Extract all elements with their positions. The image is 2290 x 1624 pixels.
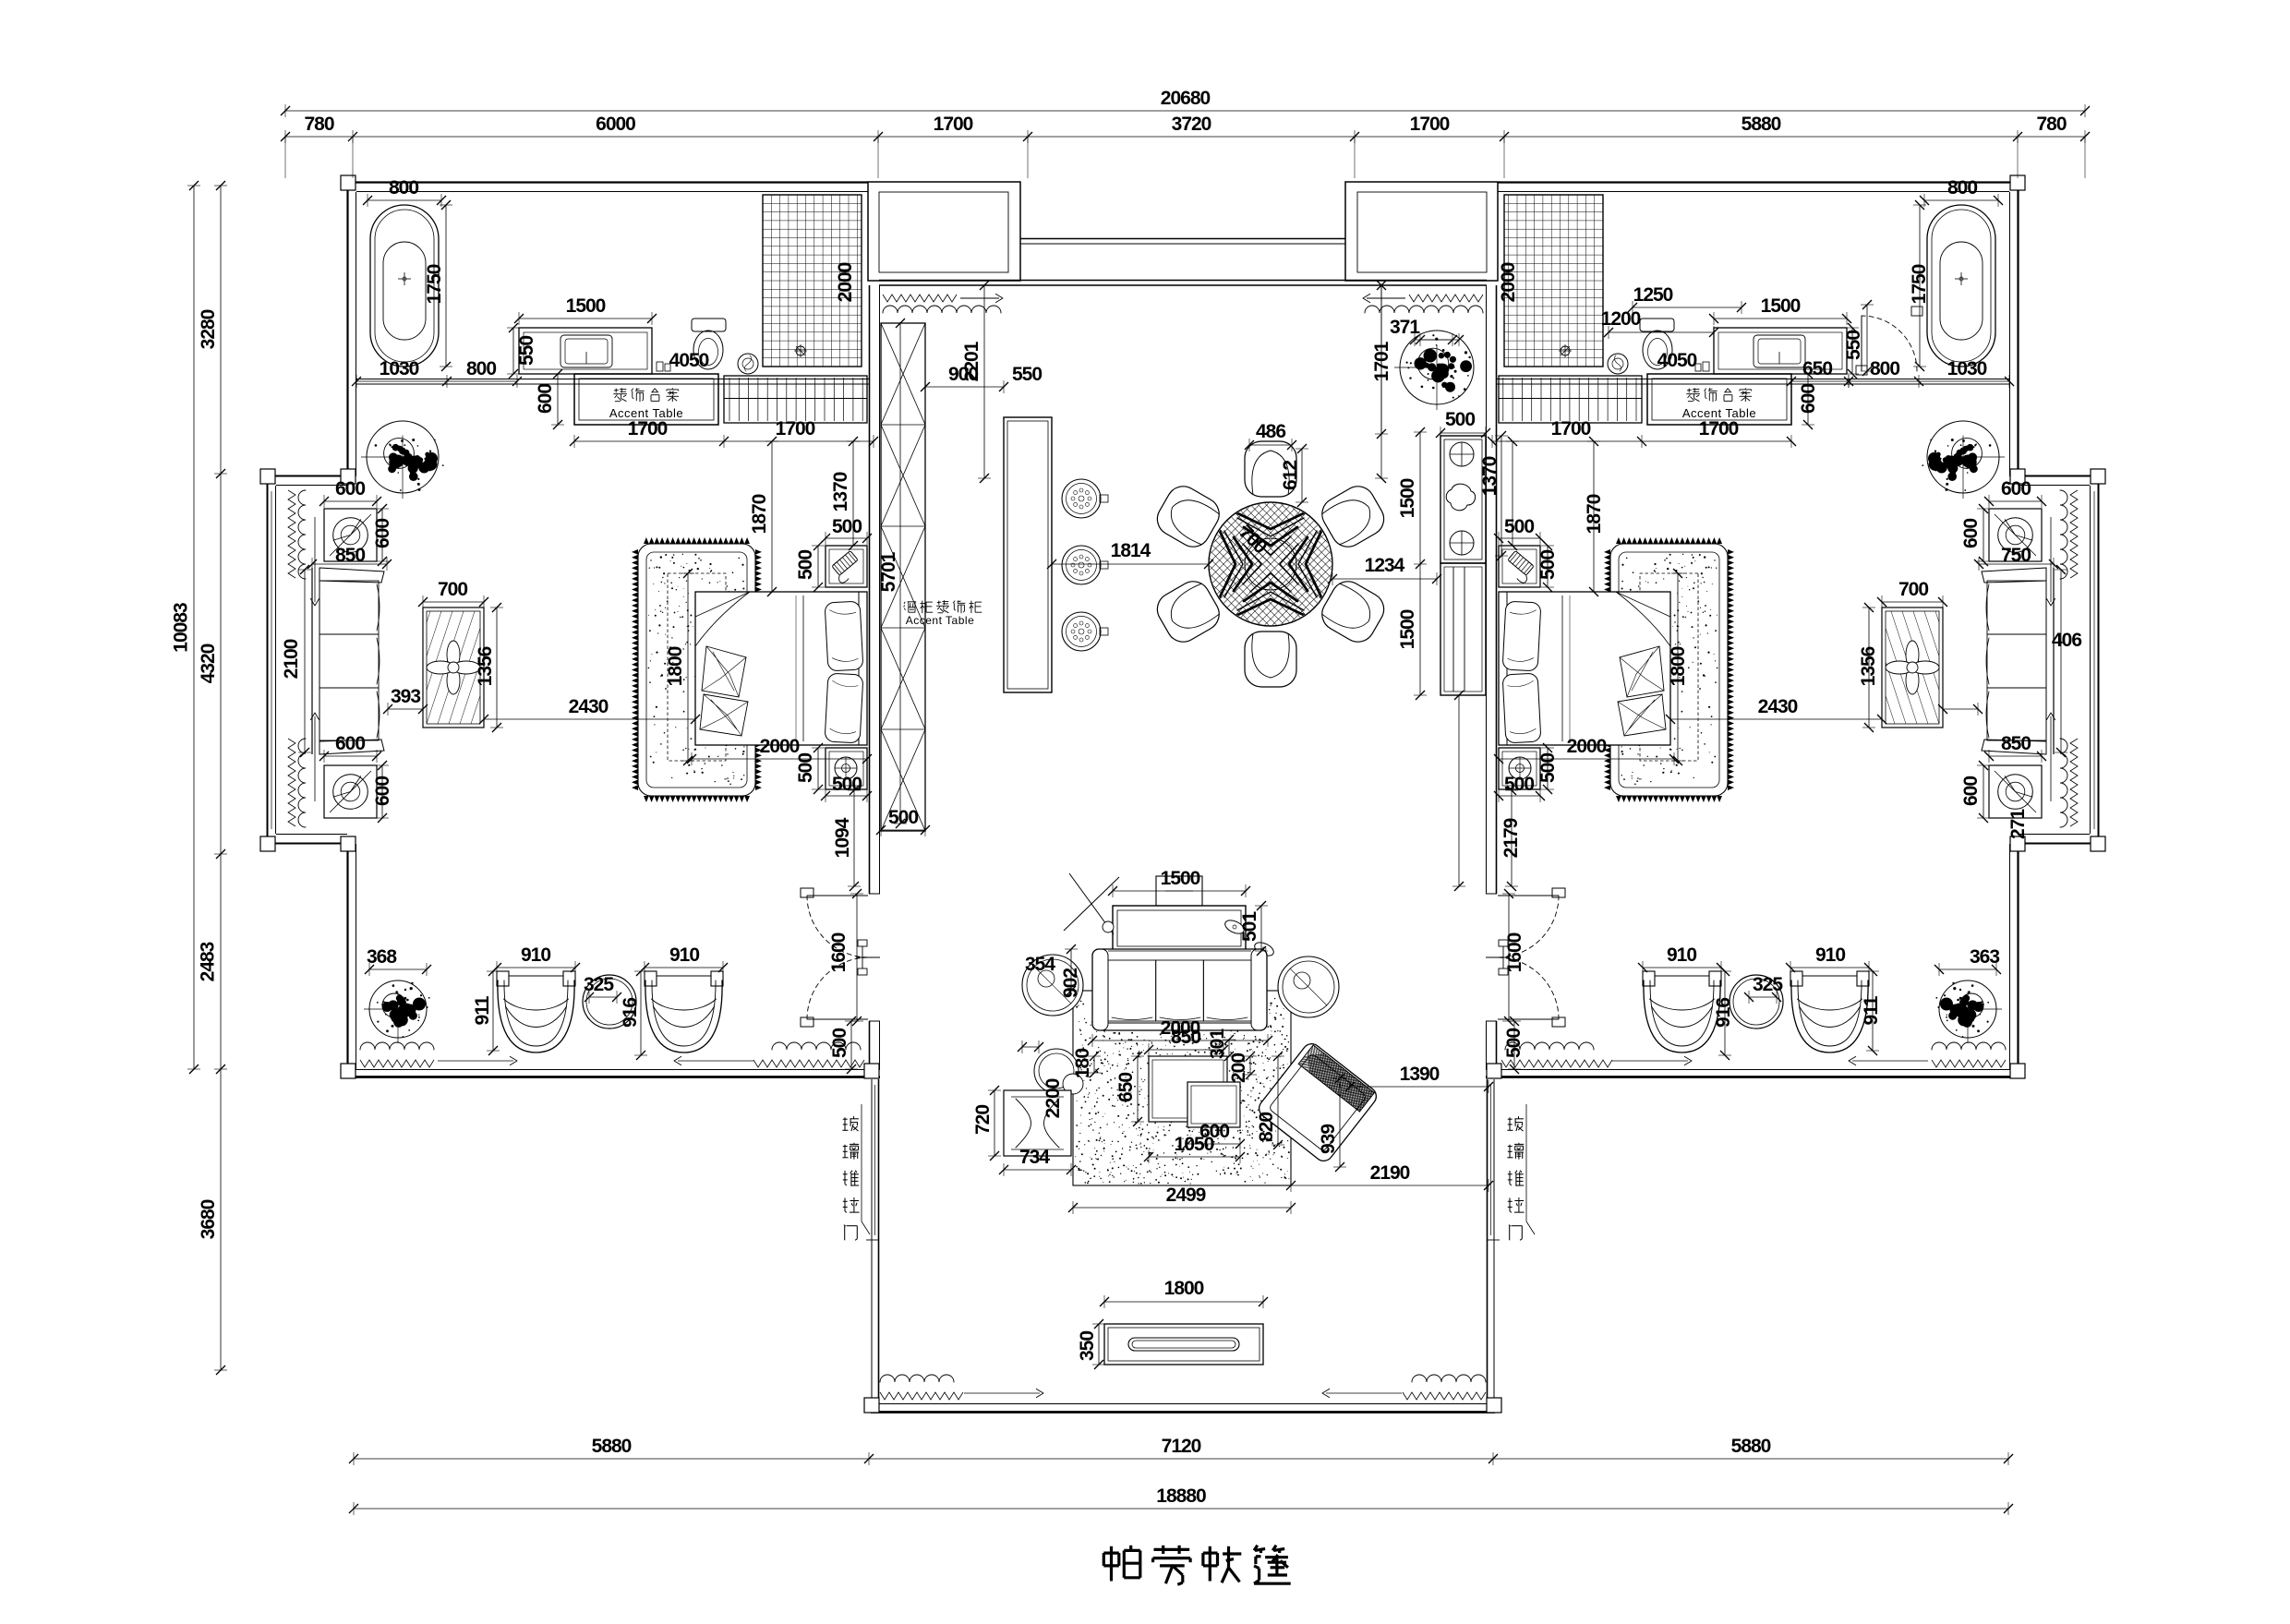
svg-text:600: 600 — [372, 776, 393, 806]
svg-text:Accent Table: Accent Table — [1682, 406, 1756, 420]
svg-text:1600: 1600 — [828, 932, 850, 972]
svg-text:5880: 5880 — [1742, 114, 1781, 135]
svg-text:1800: 1800 — [1164, 1278, 1204, 1299]
svg-text:500: 500 — [795, 550, 816, 580]
svg-text:500: 500 — [888, 807, 918, 828]
svg-text:720: 720 — [972, 1105, 994, 1135]
svg-text:354: 354 — [1025, 954, 1055, 975]
svg-text:1030: 1030 — [1947, 358, 1987, 379]
svg-text:850: 850 — [1171, 1027, 1200, 1048]
svg-text:500: 500 — [832, 516, 862, 537]
svg-text:180: 180 — [1072, 1049, 1093, 1078]
svg-text:368: 368 — [367, 946, 397, 968]
svg-text:1600: 1600 — [1504, 932, 1525, 972]
svg-text:1200: 1200 — [1601, 308, 1641, 330]
svg-text:1500: 1500 — [566, 295, 606, 317]
svg-text:500: 500 — [829, 1029, 850, 1058]
svg-text:1370: 1370 — [1479, 456, 1501, 496]
svg-text:780: 780 — [304, 114, 333, 135]
svg-text:2430: 2430 — [569, 696, 609, 717]
svg-text:820: 820 — [1256, 1113, 1277, 1142]
svg-text:916: 916 — [620, 998, 641, 1028]
svg-text:600: 600 — [1960, 776, 1982, 806]
svg-text:2483: 2483 — [198, 942, 219, 981]
svg-text:1800: 1800 — [665, 646, 686, 686]
svg-text:363: 363 — [1970, 946, 1999, 968]
svg-text:600: 600 — [372, 519, 393, 548]
svg-text:800: 800 — [389, 177, 418, 198]
svg-text:1700: 1700 — [1699, 418, 1739, 439]
svg-text:500: 500 — [1504, 516, 1534, 537]
svg-text:2190: 2190 — [1370, 1162, 1410, 1184]
svg-text:18880: 18880 — [1156, 1486, 1206, 1507]
svg-text:4050: 4050 — [669, 350, 709, 371]
svg-text:1700: 1700 — [934, 114, 973, 135]
svg-text:1750: 1750 — [1909, 264, 1930, 304]
svg-text:2100: 2100 — [281, 639, 302, 679]
svg-text:3280: 3280 — [198, 309, 219, 349]
svg-text:7120: 7120 — [1162, 1436, 1201, 1457]
svg-text:3720: 3720 — [1172, 114, 1211, 135]
svg-text:500: 500 — [1504, 774, 1534, 795]
svg-text:1356: 1356 — [1858, 646, 1879, 686]
svg-text:4320: 4320 — [198, 644, 219, 683]
svg-text:500: 500 — [1503, 1029, 1525, 1058]
svg-text:325: 325 — [584, 974, 614, 995]
svg-text:1814: 1814 — [1111, 540, 1151, 561]
svg-text:1234: 1234 — [1365, 555, 1405, 576]
svg-text:500: 500 — [795, 753, 816, 783]
svg-text:850: 850 — [2001, 733, 2031, 754]
svg-text:1370: 1370 — [830, 472, 851, 511]
svg-text:1870: 1870 — [1584, 494, 1605, 534]
svg-text:800: 800 — [1947, 177, 1977, 198]
svg-text:500: 500 — [1537, 753, 1559, 783]
svg-text:734: 734 — [1019, 1147, 1050, 1168]
svg-text:1750: 1750 — [424, 264, 445, 304]
svg-text:2430: 2430 — [1758, 696, 1798, 717]
svg-text:1250: 1250 — [1633, 284, 1673, 306]
svg-text:911: 911 — [1861, 995, 1882, 1025]
svg-text:1870: 1870 — [749, 494, 770, 534]
svg-text:500: 500 — [1537, 550, 1559, 580]
svg-text:1356: 1356 — [475, 646, 496, 686]
svg-text:910: 910 — [1667, 944, 1696, 966]
svg-text:911: 911 — [472, 995, 493, 1025]
svg-text:2000: 2000 — [760, 736, 800, 757]
svg-text:5701: 5701 — [878, 551, 899, 592]
svg-text:2200: 2200 — [1043, 1078, 1064, 1118]
svg-text:393: 393 — [391, 686, 420, 707]
svg-text:6000: 6000 — [596, 114, 635, 135]
svg-text:910: 910 — [521, 944, 550, 966]
svg-text:600: 600 — [1960, 519, 1982, 548]
svg-text:550: 550 — [516, 336, 537, 366]
svg-text:501: 501 — [1239, 911, 1260, 942]
svg-text:350: 350 — [1077, 1331, 1098, 1361]
svg-text:939: 939 — [1318, 1125, 1339, 1154]
svg-text:325: 325 — [1753, 974, 1783, 995]
svg-text:916: 916 — [1713, 998, 1734, 1028]
svg-text:3680: 3680 — [198, 1199, 219, 1239]
svg-text:5880: 5880 — [1731, 1436, 1771, 1457]
svg-text:4050: 4050 — [1657, 350, 1697, 371]
svg-text:780: 780 — [2036, 114, 2066, 135]
svg-text:271: 271 — [2007, 809, 2029, 839]
svg-text:2000: 2000 — [835, 262, 856, 302]
svg-text:550: 550 — [1012, 364, 1042, 385]
svg-text:900: 900 — [948, 364, 978, 385]
svg-text:700: 700 — [438, 579, 467, 600]
svg-text:600: 600 — [535, 384, 556, 414]
svg-text:1500: 1500 — [1761, 295, 1801, 317]
svg-text:600: 600 — [335, 478, 365, 499]
svg-text:1700: 1700 — [1551, 418, 1591, 439]
svg-text:1500: 1500 — [1397, 478, 1418, 518]
svg-text:20680: 20680 — [1161, 88, 1211, 109]
svg-text:5880: 5880 — [592, 1436, 632, 1457]
svg-text:850: 850 — [335, 545, 365, 566]
svg-text:1701: 1701 — [1371, 341, 1392, 381]
svg-text:612: 612 — [1280, 461, 1301, 490]
svg-text:1800: 1800 — [1668, 646, 1689, 686]
svg-text:500: 500 — [1445, 409, 1475, 430]
svg-text:2179: 2179 — [1501, 818, 1522, 858]
svg-text:1500: 1500 — [1161, 868, 1200, 889]
svg-text:800: 800 — [466, 358, 496, 379]
svg-text:10083: 10083 — [171, 603, 192, 653]
svg-text:2499: 2499 — [1166, 1185, 1206, 1206]
svg-text:910: 910 — [1815, 944, 1845, 966]
svg-text:406: 406 — [2052, 630, 2081, 651]
svg-text:1390: 1390 — [1400, 1064, 1440, 1085]
svg-text:550: 550 — [1843, 331, 1864, 360]
svg-text:2000: 2000 — [1498, 262, 1519, 302]
svg-text:371: 371 — [1390, 317, 1420, 338]
svg-text:902: 902 — [1060, 968, 1081, 998]
svg-text:1700: 1700 — [776, 418, 815, 439]
svg-text:800: 800 — [1870, 358, 1899, 379]
svg-text:Accent Table: Accent Table — [609, 406, 683, 420]
svg-text:1700: 1700 — [1410, 114, 1450, 135]
svg-text:2000: 2000 — [1567, 736, 1607, 757]
svg-text:Accent Table: Accent Table — [906, 614, 975, 627]
svg-text:650: 650 — [1802, 358, 1832, 379]
svg-text:200: 200 — [1228, 1053, 1249, 1083]
svg-text:600: 600 — [335, 733, 365, 754]
svg-text:650: 650 — [1115, 1073, 1137, 1102]
svg-text:1050: 1050 — [1175, 1134, 1214, 1155]
svg-text:600: 600 — [2001, 478, 2031, 499]
svg-text:1094: 1094 — [832, 817, 853, 858]
svg-text:700: 700 — [1898, 579, 1928, 600]
svg-text:486: 486 — [1256, 421, 1285, 442]
svg-text:500: 500 — [832, 774, 862, 795]
svg-text:910: 910 — [669, 944, 699, 966]
svg-text:1700: 1700 — [628, 418, 668, 439]
svg-text:750: 750 — [2001, 545, 2031, 566]
svg-text:600: 600 — [1798, 384, 1819, 414]
svg-text:301: 301 — [1207, 1029, 1228, 1059]
svg-text:1500: 1500 — [1397, 609, 1418, 649]
svg-text:1030: 1030 — [380, 358, 419, 379]
